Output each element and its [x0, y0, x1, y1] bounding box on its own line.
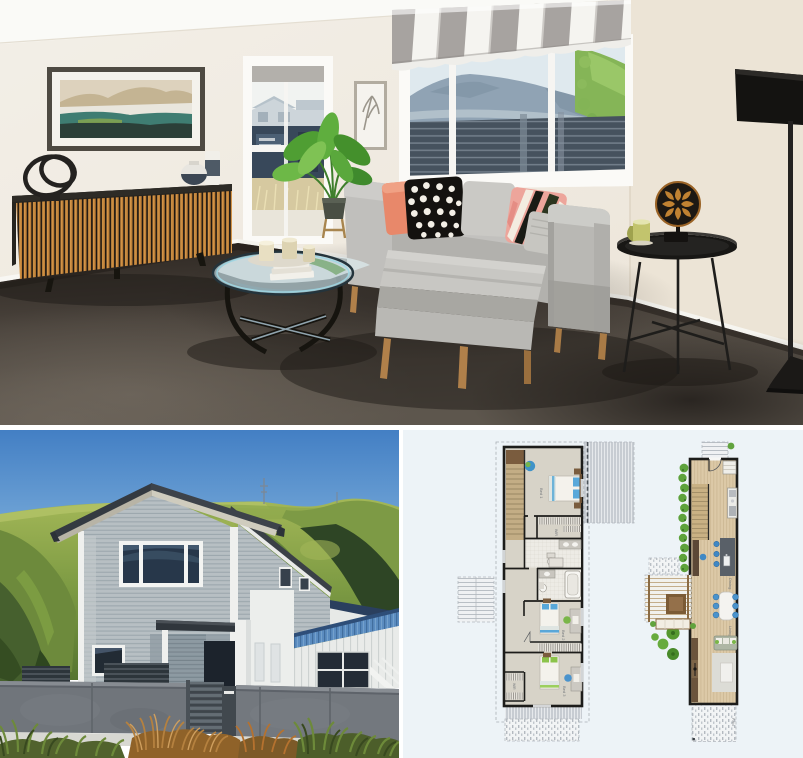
svg-text:Bed 1: Bed 1: [539, 488, 544, 499]
svg-text:Dining: Dining: [728, 578, 733, 589]
svg-text:Patio: Patio: [731, 718, 735, 726]
svg-text:Bed 3: Bed 3: [562, 686, 567, 697]
svg-text:Living: Living: [728, 626, 733, 636]
svg-text:WIR: WIR: [554, 529, 558, 536]
svg-text:WIR: WIR: [512, 683, 516, 690]
svg-text:Bed 2: Bed 2: [561, 630, 566, 641]
